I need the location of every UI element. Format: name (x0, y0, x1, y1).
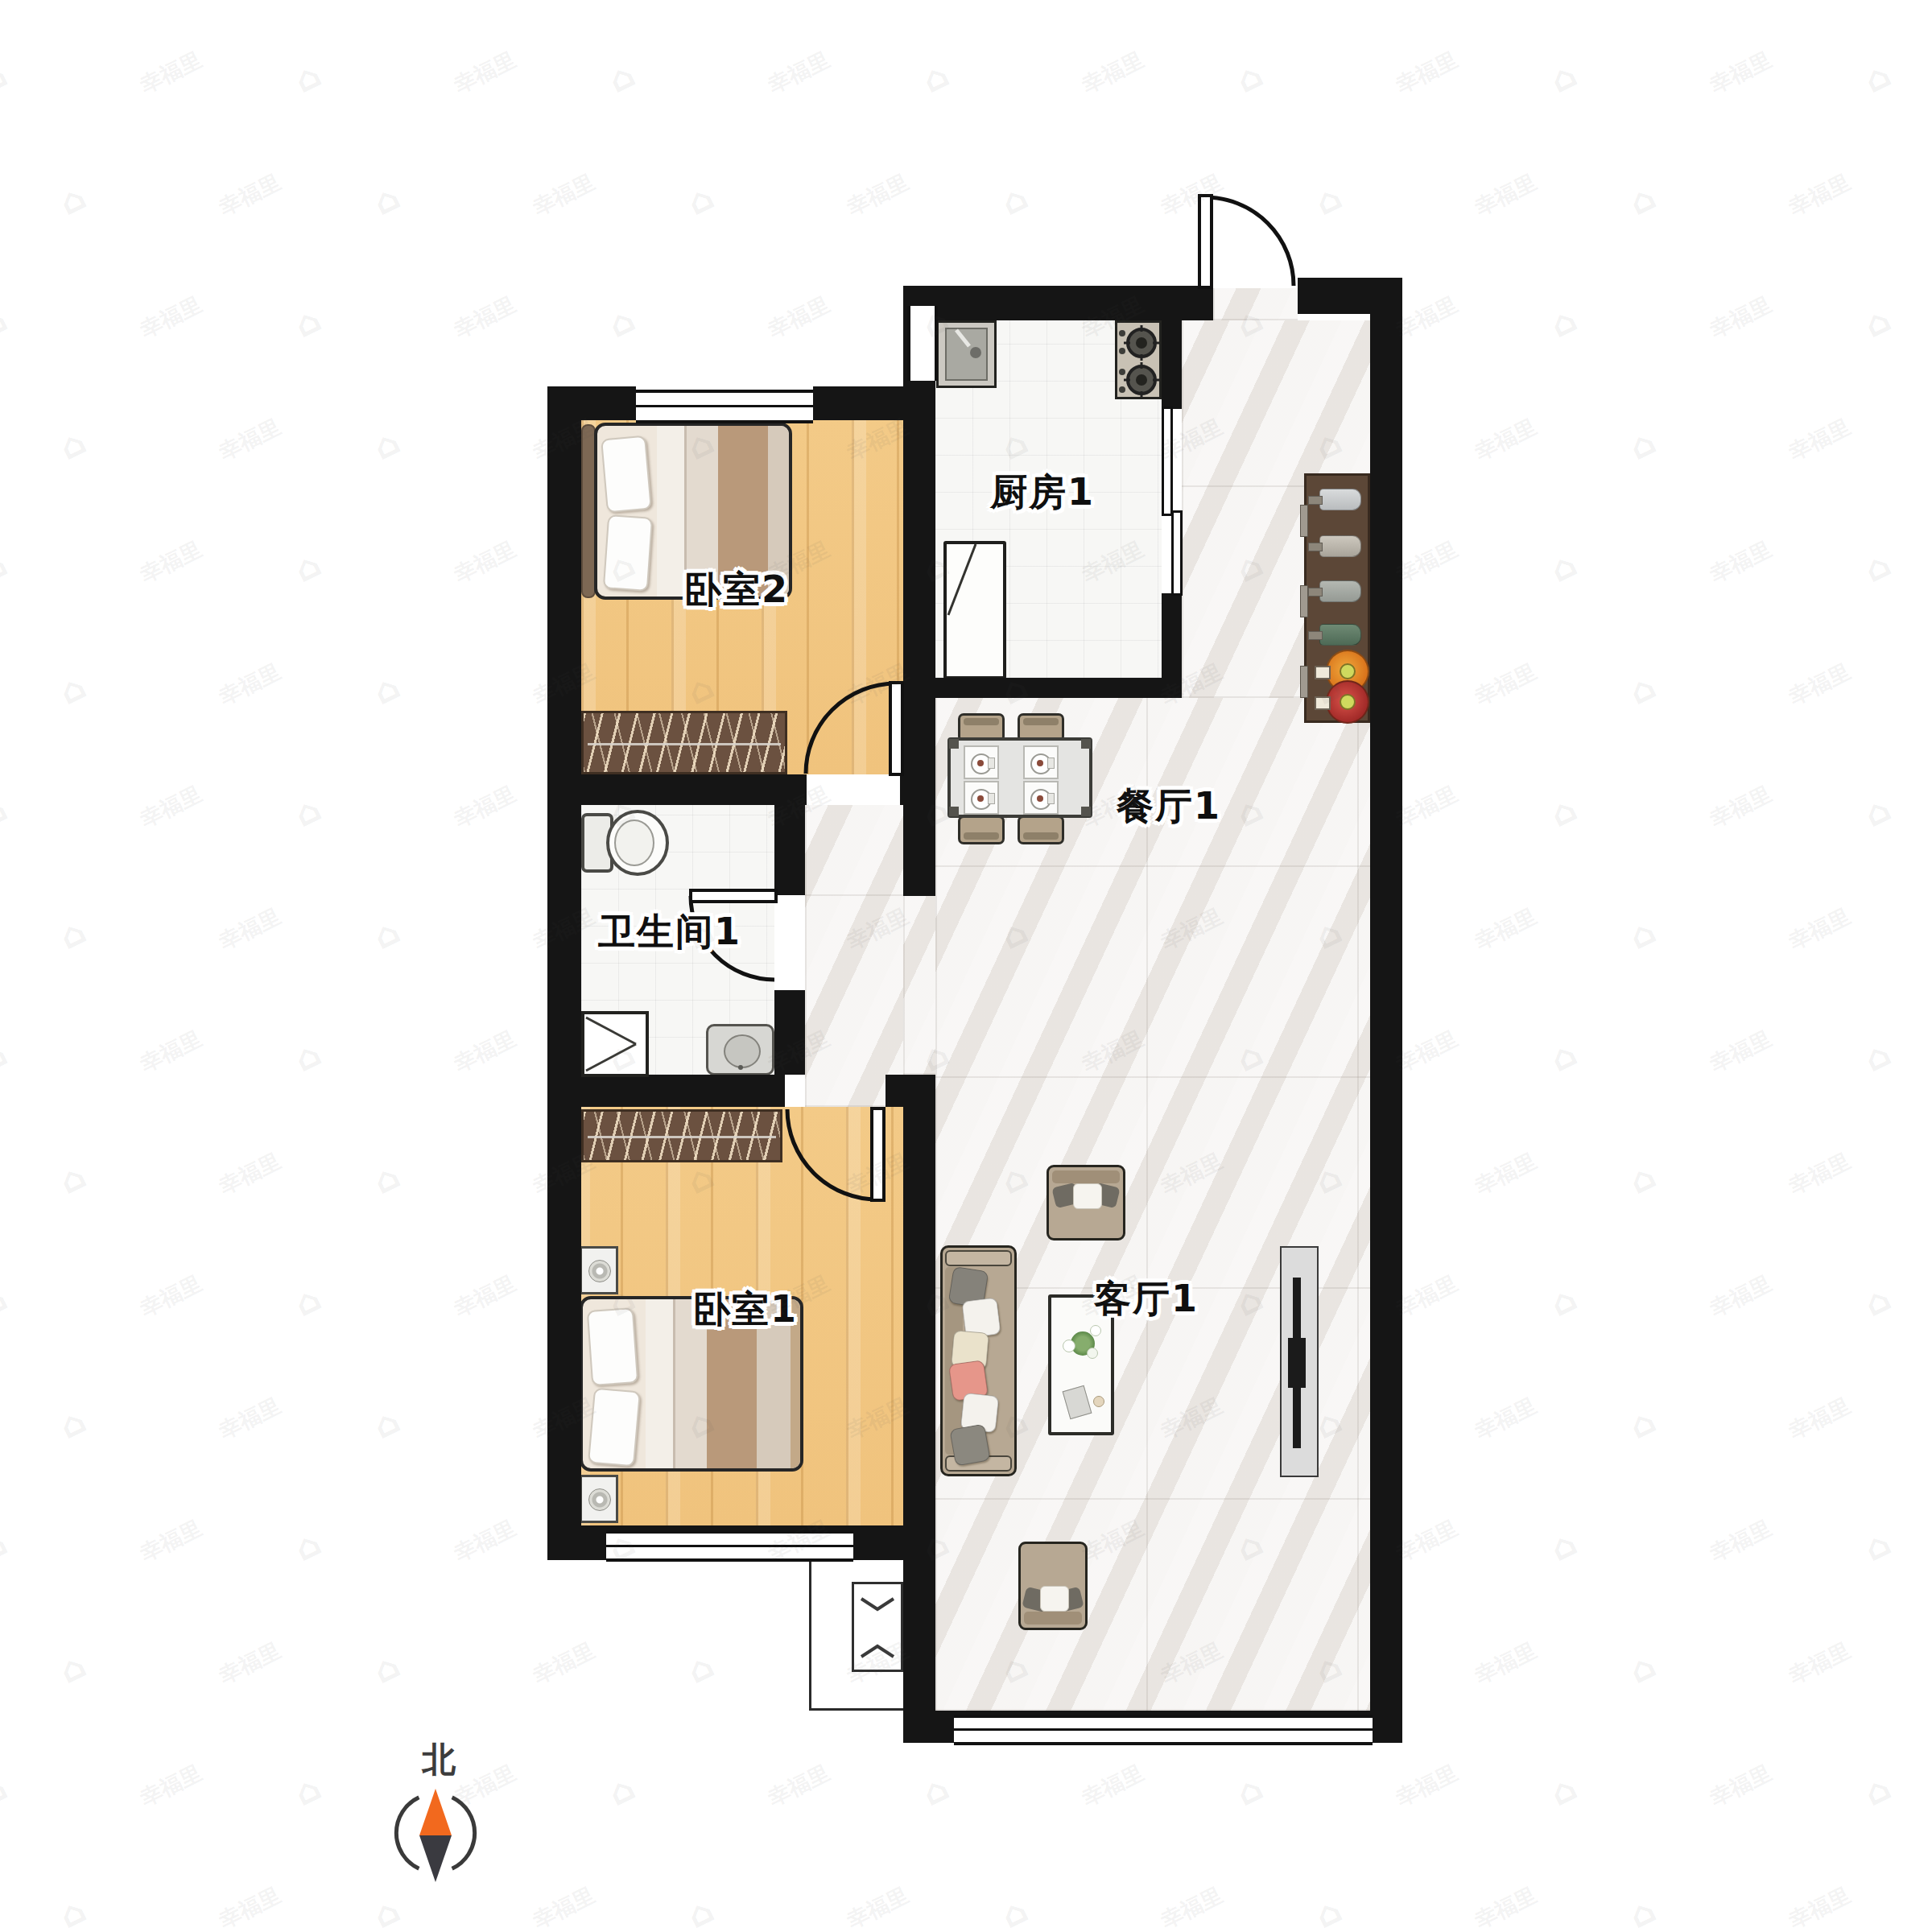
watermark-house-icon: ⌂ (1858, 299, 1897, 345)
bedroom1-nightstand-icon (580, 1475, 618, 1523)
living-label: 客厅1 (1094, 1274, 1199, 1324)
watermark-text: 幸福里 (1705, 779, 1777, 834)
watermark-house-icon: ⌂ (1858, 1278, 1897, 1324)
watermark-house-icon: ⌂ (1544, 1034, 1583, 1080)
wall (774, 805, 805, 895)
watermark-house-icon: ⌂ (995, 1890, 1034, 1932)
watermark-house-icon: ⌂ (1858, 789, 1897, 835)
watermark-text: 幸福里 (1705, 45, 1777, 100)
watermark-text: 幸福里 (135, 1513, 207, 1568)
bedroom1-label: 卧室1 (693, 1285, 798, 1335)
ac-unit-icon (852, 1582, 903, 1672)
watermark-text: 幸福里 (528, 1636, 600, 1690)
kitchen-stove-icon (1115, 320, 1162, 399)
armchair-icon (1018, 1542, 1088, 1630)
watermark-text: 幸福里 (449, 535, 521, 589)
compass-icon (396, 1789, 474, 1882)
watermark-text: 幸福里 (1391, 1758, 1463, 1813)
watermark-house-icon: ⌂ (0, 1768, 13, 1814)
watermark-house-icon: ⌂ (367, 422, 407, 468)
watermark-text: 幸福里 (842, 1880, 914, 1932)
watermark-text: 幸福里 (842, 167, 914, 222)
wine-cabinet-icon (1304, 473, 1370, 723)
watermark-text: 幸福里 (449, 1758, 521, 1813)
bedroom1-nightstand-icon (580, 1246, 618, 1294)
watermark-text: 幸福里 (1156, 167, 1228, 222)
watermark-text: 幸福里 (214, 657, 286, 712)
watermark-text: 幸福里 (1470, 657, 1542, 712)
watermark-house-icon: ⌂ (1309, 177, 1348, 223)
watermark-text: 幸福里 (449, 45, 521, 100)
watermark-text: 幸福里 (1784, 657, 1856, 712)
bedroom2-window (636, 390, 813, 423)
wall (547, 1075, 785, 1107)
watermark-text: 幸福里 (1705, 1513, 1777, 1568)
watermark-house-icon: ⌂ (1858, 55, 1897, 101)
watermark-text: 幸福里 (1705, 535, 1777, 589)
watermark-house-icon: ⌂ (367, 177, 407, 223)
bedroom1-wardrobe-icon (581, 1109, 782, 1162)
wall (547, 386, 581, 1560)
watermark-text: 幸福里 (449, 1269, 521, 1323)
watermark-house-icon: ⌂ (1623, 1401, 1662, 1447)
watermark-house-icon: ⌂ (0, 1034, 13, 1080)
dining-table-icon (947, 737, 1092, 818)
watermark-house-icon: ⌂ (288, 1034, 328, 1080)
watermark-text: 幸福里 (1784, 167, 1856, 222)
watermark-house-icon: ⌂ (0, 299, 13, 345)
watermark-house-icon: ⌂ (1623, 667, 1662, 712)
hallway-floor (805, 805, 903, 1107)
watermark-house-icon: ⌂ (1623, 177, 1662, 223)
watermark-house-icon: ⌂ (1544, 789, 1583, 835)
watermark-text: 幸福里 (1705, 1758, 1777, 1813)
watermark-house-icon: ⌂ (367, 911, 407, 957)
watermark-house-icon: ⌂ (288, 1278, 328, 1324)
watermark-text: 幸福里 (214, 167, 286, 222)
wall (903, 1075, 935, 1743)
watermark-text: 幸福里 (763, 290, 835, 345)
watermark-text: 幸福里 (449, 290, 521, 345)
dining-living-floor (935, 698, 1370, 1711)
watermark-house-icon: ⌂ (0, 789, 13, 835)
kitchen-sliding-door (1162, 407, 1173, 516)
watermark-house-icon: ⌂ (288, 299, 328, 345)
watermark-house-icon: ⌂ (916, 55, 956, 101)
watermark-text: 幸福里 (1784, 1880, 1856, 1932)
watermark-text: 幸福里 (1705, 1269, 1777, 1323)
watermark-text: 幸福里 (135, 1758, 207, 1813)
wall (1162, 320, 1182, 409)
tv-bracket-icon (1288, 1338, 1306, 1388)
wall (547, 774, 807, 805)
kitchen-sliding-door (1171, 510, 1183, 596)
entry-gap-floor (1213, 288, 1298, 320)
watermark-house-icon: ⌂ (1623, 1890, 1662, 1932)
watermark-text: 幸福里 (1470, 167, 1542, 222)
watermark-text: 幸福里 (1470, 1391, 1542, 1446)
kitchen-window (907, 306, 938, 381)
watermark-house-icon: ⌂ (1858, 1768, 1897, 1814)
watermark-house-icon: ⌂ (288, 1523, 328, 1569)
dining-chair-icon (958, 815, 1005, 844)
watermark-text: 幸福里 (528, 1880, 600, 1932)
watermark-house-icon: ⌂ (1623, 422, 1662, 468)
kitchen-label: 厨房1 (990, 468, 1095, 518)
watermark-house-icon: ⌂ (0, 1523, 13, 1569)
watermark-house-icon: ⌂ (367, 1401, 407, 1447)
watermark-house-icon: ⌂ (1544, 1523, 1583, 1569)
watermark-house-icon: ⌂ (602, 299, 642, 345)
watermark-house-icon: ⌂ (916, 1768, 956, 1814)
watermark-text: 幸福里 (214, 1880, 286, 1932)
watermark-house-icon: ⌂ (288, 1768, 328, 1814)
kitchen-fridge-icon (943, 541, 1006, 679)
watermark-text: 幸福里 (1391, 45, 1463, 100)
bedroom2-wardrobe-icon (581, 711, 787, 774)
watermark-house-icon: ⌂ (53, 1401, 93, 1447)
watermark-text: 幸福里 (1784, 1146, 1856, 1201)
kitchen-sink-counter-icon (936, 320, 997, 388)
wall (774, 990, 805, 1075)
watermark-text: 幸福里 (214, 1636, 286, 1690)
watermark-house-icon: ⌂ (53, 1645, 93, 1691)
watermark-house-icon: ⌂ (53, 1156, 93, 1202)
watermark-text: 幸福里 (135, 1024, 207, 1079)
watermark-house-icon: ⌂ (53, 911, 93, 957)
watermark-text: 幸福里 (1705, 290, 1777, 345)
watermark-house-icon: ⌂ (1858, 544, 1897, 590)
watermark-house-icon: ⌂ (995, 177, 1034, 223)
watermark-house-icon: ⌂ (288, 55, 328, 101)
watermark-text: 幸福里 (1784, 902, 1856, 956)
watermark-house-icon: ⌂ (1623, 1645, 1662, 1691)
wall (935, 678, 1182, 698)
watermark-text: 幸福里 (449, 779, 521, 834)
wall (903, 286, 1213, 320)
living-room-window (954, 1715, 1373, 1745)
watermark-text: 幸福里 (1077, 1758, 1149, 1813)
wall (900, 774, 935, 805)
hallway-connector-floor (903, 896, 935, 1075)
sofa-icon (940, 1245, 1017, 1476)
watermark-text: 幸福里 (1784, 412, 1856, 467)
watermark-house-icon: ⌂ (288, 789, 328, 835)
wall (1370, 278, 1402, 1743)
watermark-house-icon: ⌂ (367, 1156, 407, 1202)
watermark-text: 幸福里 (528, 167, 600, 222)
watermark-house-icon: ⌂ (1858, 1034, 1897, 1080)
watermark-text: 幸福里 (763, 1758, 835, 1813)
watermark-text: 幸福里 (135, 290, 207, 345)
watermark-house-icon: ⌂ (0, 1278, 13, 1324)
watermark-house-icon: ⌂ (681, 177, 720, 223)
watermark-text: 幸福里 (1156, 1880, 1228, 1932)
watermark-text: 幸福里 (1784, 1391, 1856, 1446)
watermark-house-icon: ⌂ (0, 544, 13, 590)
watermark-text: 幸福里 (135, 535, 207, 589)
watermark-text: 幸福里 (449, 1024, 521, 1079)
watermark-house-icon: ⌂ (367, 1645, 407, 1691)
watermark-house-icon: ⌂ (1623, 911, 1662, 957)
watermark-text: 幸福里 (214, 1391, 286, 1446)
watermark-text: 幸福里 (214, 902, 286, 956)
watermark-house-icon: ⌂ (1544, 299, 1583, 345)
watermark-house-icon: ⌂ (1544, 544, 1583, 590)
watermark-text: 幸福里 (1470, 1146, 1542, 1201)
watermark-house-icon: ⌂ (53, 177, 93, 223)
watermark-house-icon: ⌂ (1230, 55, 1269, 101)
floor-plan-canvas: 卧室2 厨房1 卫生间1 餐厅1 卧室1 客厅1 北 幸福里⌂幸福里⌂幸福里⌂幸… (0, 0, 1932, 1932)
watermark-house-icon: ⌂ (681, 1890, 720, 1932)
watermark-text: 幸福里 (135, 779, 207, 834)
watermark-house-icon: ⌂ (367, 667, 407, 712)
watermark-house-icon: ⌂ (53, 422, 93, 468)
bedroom1-window (606, 1530, 853, 1562)
watermark-house-icon: ⌂ (1544, 1768, 1583, 1814)
watermark-text: 幸福里 (1705, 1024, 1777, 1079)
dining-chair-icon (1018, 815, 1064, 844)
watermark-house-icon: ⌂ (1309, 1890, 1348, 1932)
watermark-text: 幸福里 (214, 1146, 286, 1201)
dining-label: 餐厅1 (1117, 782, 1221, 832)
watermark-house-icon: ⌂ (602, 1768, 642, 1814)
watermark-house-icon: ⌂ (602, 55, 642, 101)
watermark-house-icon: ⌂ (1230, 1768, 1269, 1814)
watermark-house-icon: ⌂ (1544, 1278, 1583, 1324)
watermark-text: 幸福里 (1784, 1636, 1856, 1690)
watermark-text: 幸福里 (135, 45, 207, 100)
watermark-text: 幸福里 (763, 45, 835, 100)
watermark-house-icon: ⌂ (1544, 55, 1583, 101)
bathroom-sink-icon (706, 1024, 774, 1075)
wall (547, 386, 636, 420)
armchair-icon (1046, 1165, 1125, 1241)
watermark-text: 幸福里 (214, 412, 286, 467)
watermark-house-icon: ⌂ (681, 1645, 720, 1691)
watermark-text: 幸福里 (1470, 1636, 1542, 1690)
entry-door-icon (1199, 196, 1294, 287)
watermark-house-icon: ⌂ (53, 667, 93, 712)
watermark-text: 幸福里 (135, 1269, 207, 1323)
watermark-house-icon: ⌂ (1858, 1523, 1897, 1569)
watermark-house-icon: ⌂ (53, 1890, 93, 1932)
watermark-text: 幸福里 (1470, 412, 1542, 467)
watermark-text: 幸福里 (1077, 45, 1149, 100)
watermark-house-icon: ⌂ (1623, 1156, 1662, 1202)
compass-north-label: 北 (422, 1737, 456, 1782)
watermark-text: 幸福里 (1470, 902, 1542, 956)
watermark-house-icon: ⌂ (0, 55, 13, 101)
watermark-house-icon: ⌂ (288, 544, 328, 590)
bathroom-label: 卫生间1 (598, 907, 741, 957)
watermark-text: 幸福里 (1470, 1880, 1542, 1932)
watermark-house-icon: ⌂ (367, 1890, 407, 1932)
watermark-text: 幸福里 (449, 1513, 521, 1568)
bedroom2-label: 卧室2 (684, 565, 789, 615)
